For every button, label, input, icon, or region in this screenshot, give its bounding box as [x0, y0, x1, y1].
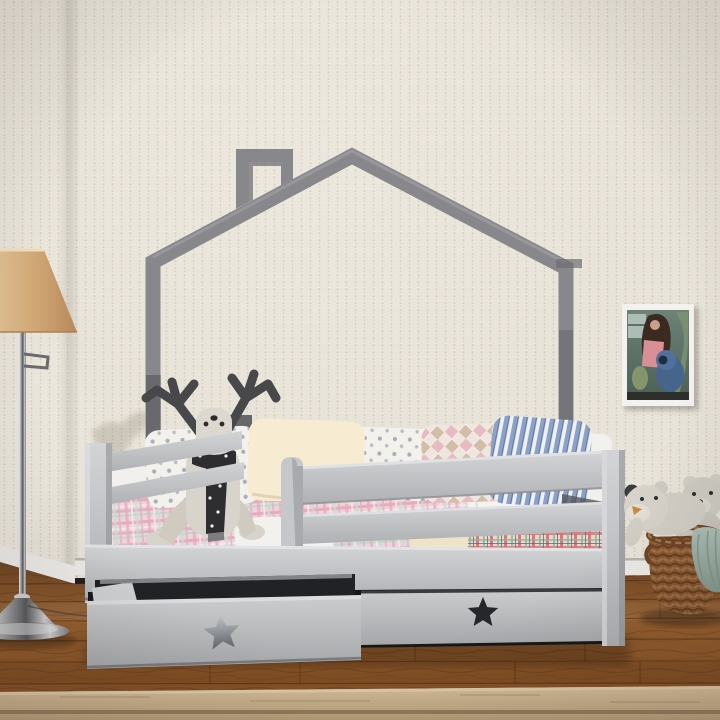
room-photo [0, 0, 720, 720]
vignette [0, 0, 720, 720]
